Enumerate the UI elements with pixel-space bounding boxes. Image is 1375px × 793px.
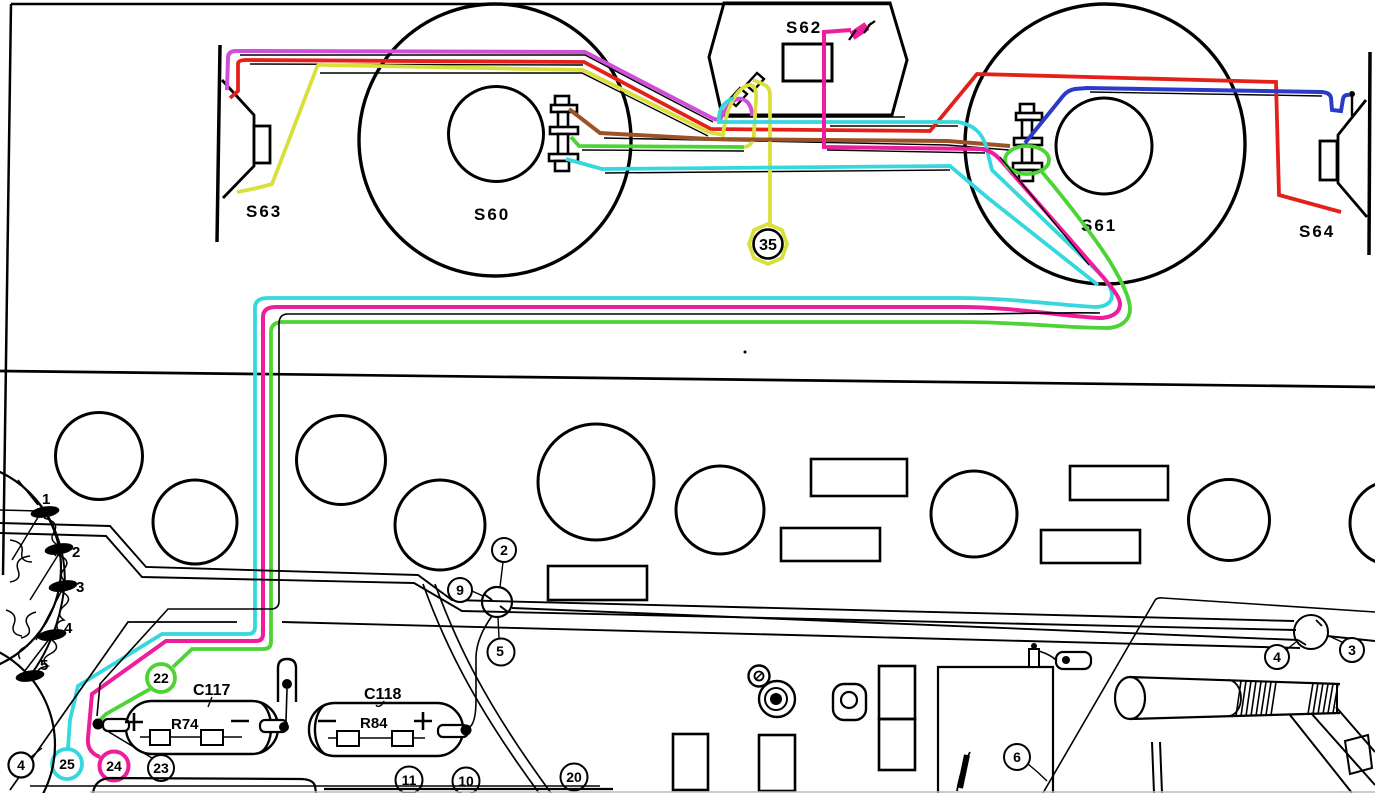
svg-text:22: 22 [153,670,169,686]
svg-text:3: 3 [76,579,84,596]
svg-text:S60: S60 [474,205,510,224]
svg-text:20: 20 [566,769,582,785]
svg-text:2: 2 [72,544,80,561]
svg-text:S62: S62 [786,18,822,37]
svg-text:4: 4 [1273,649,1281,665]
svg-text:24: 24 [106,758,122,774]
svg-text:R84: R84 [360,715,388,732]
svg-text:5: 5 [40,657,48,674]
svg-text:35: 35 [759,237,777,254]
svg-text:4: 4 [17,757,25,773]
svg-text:4: 4 [64,620,73,637]
svg-text:C118: C118 [364,686,401,703]
svg-text:C117: C117 [193,682,230,699]
svg-text:25: 25 [59,756,75,772]
svg-text:R74: R74 [171,716,199,733]
svg-text:5: 5 [496,643,504,659]
svg-text:3: 3 [1348,642,1356,658]
svg-text:1: 1 [42,491,50,508]
svg-text:2: 2 [500,542,508,558]
svg-text:9: 9 [456,582,464,598]
svg-text:S64: S64 [1299,222,1335,241]
svg-text:23: 23 [153,760,169,776]
svg-text:S63: S63 [246,202,282,221]
svg-text:6: 6 [1013,749,1021,765]
